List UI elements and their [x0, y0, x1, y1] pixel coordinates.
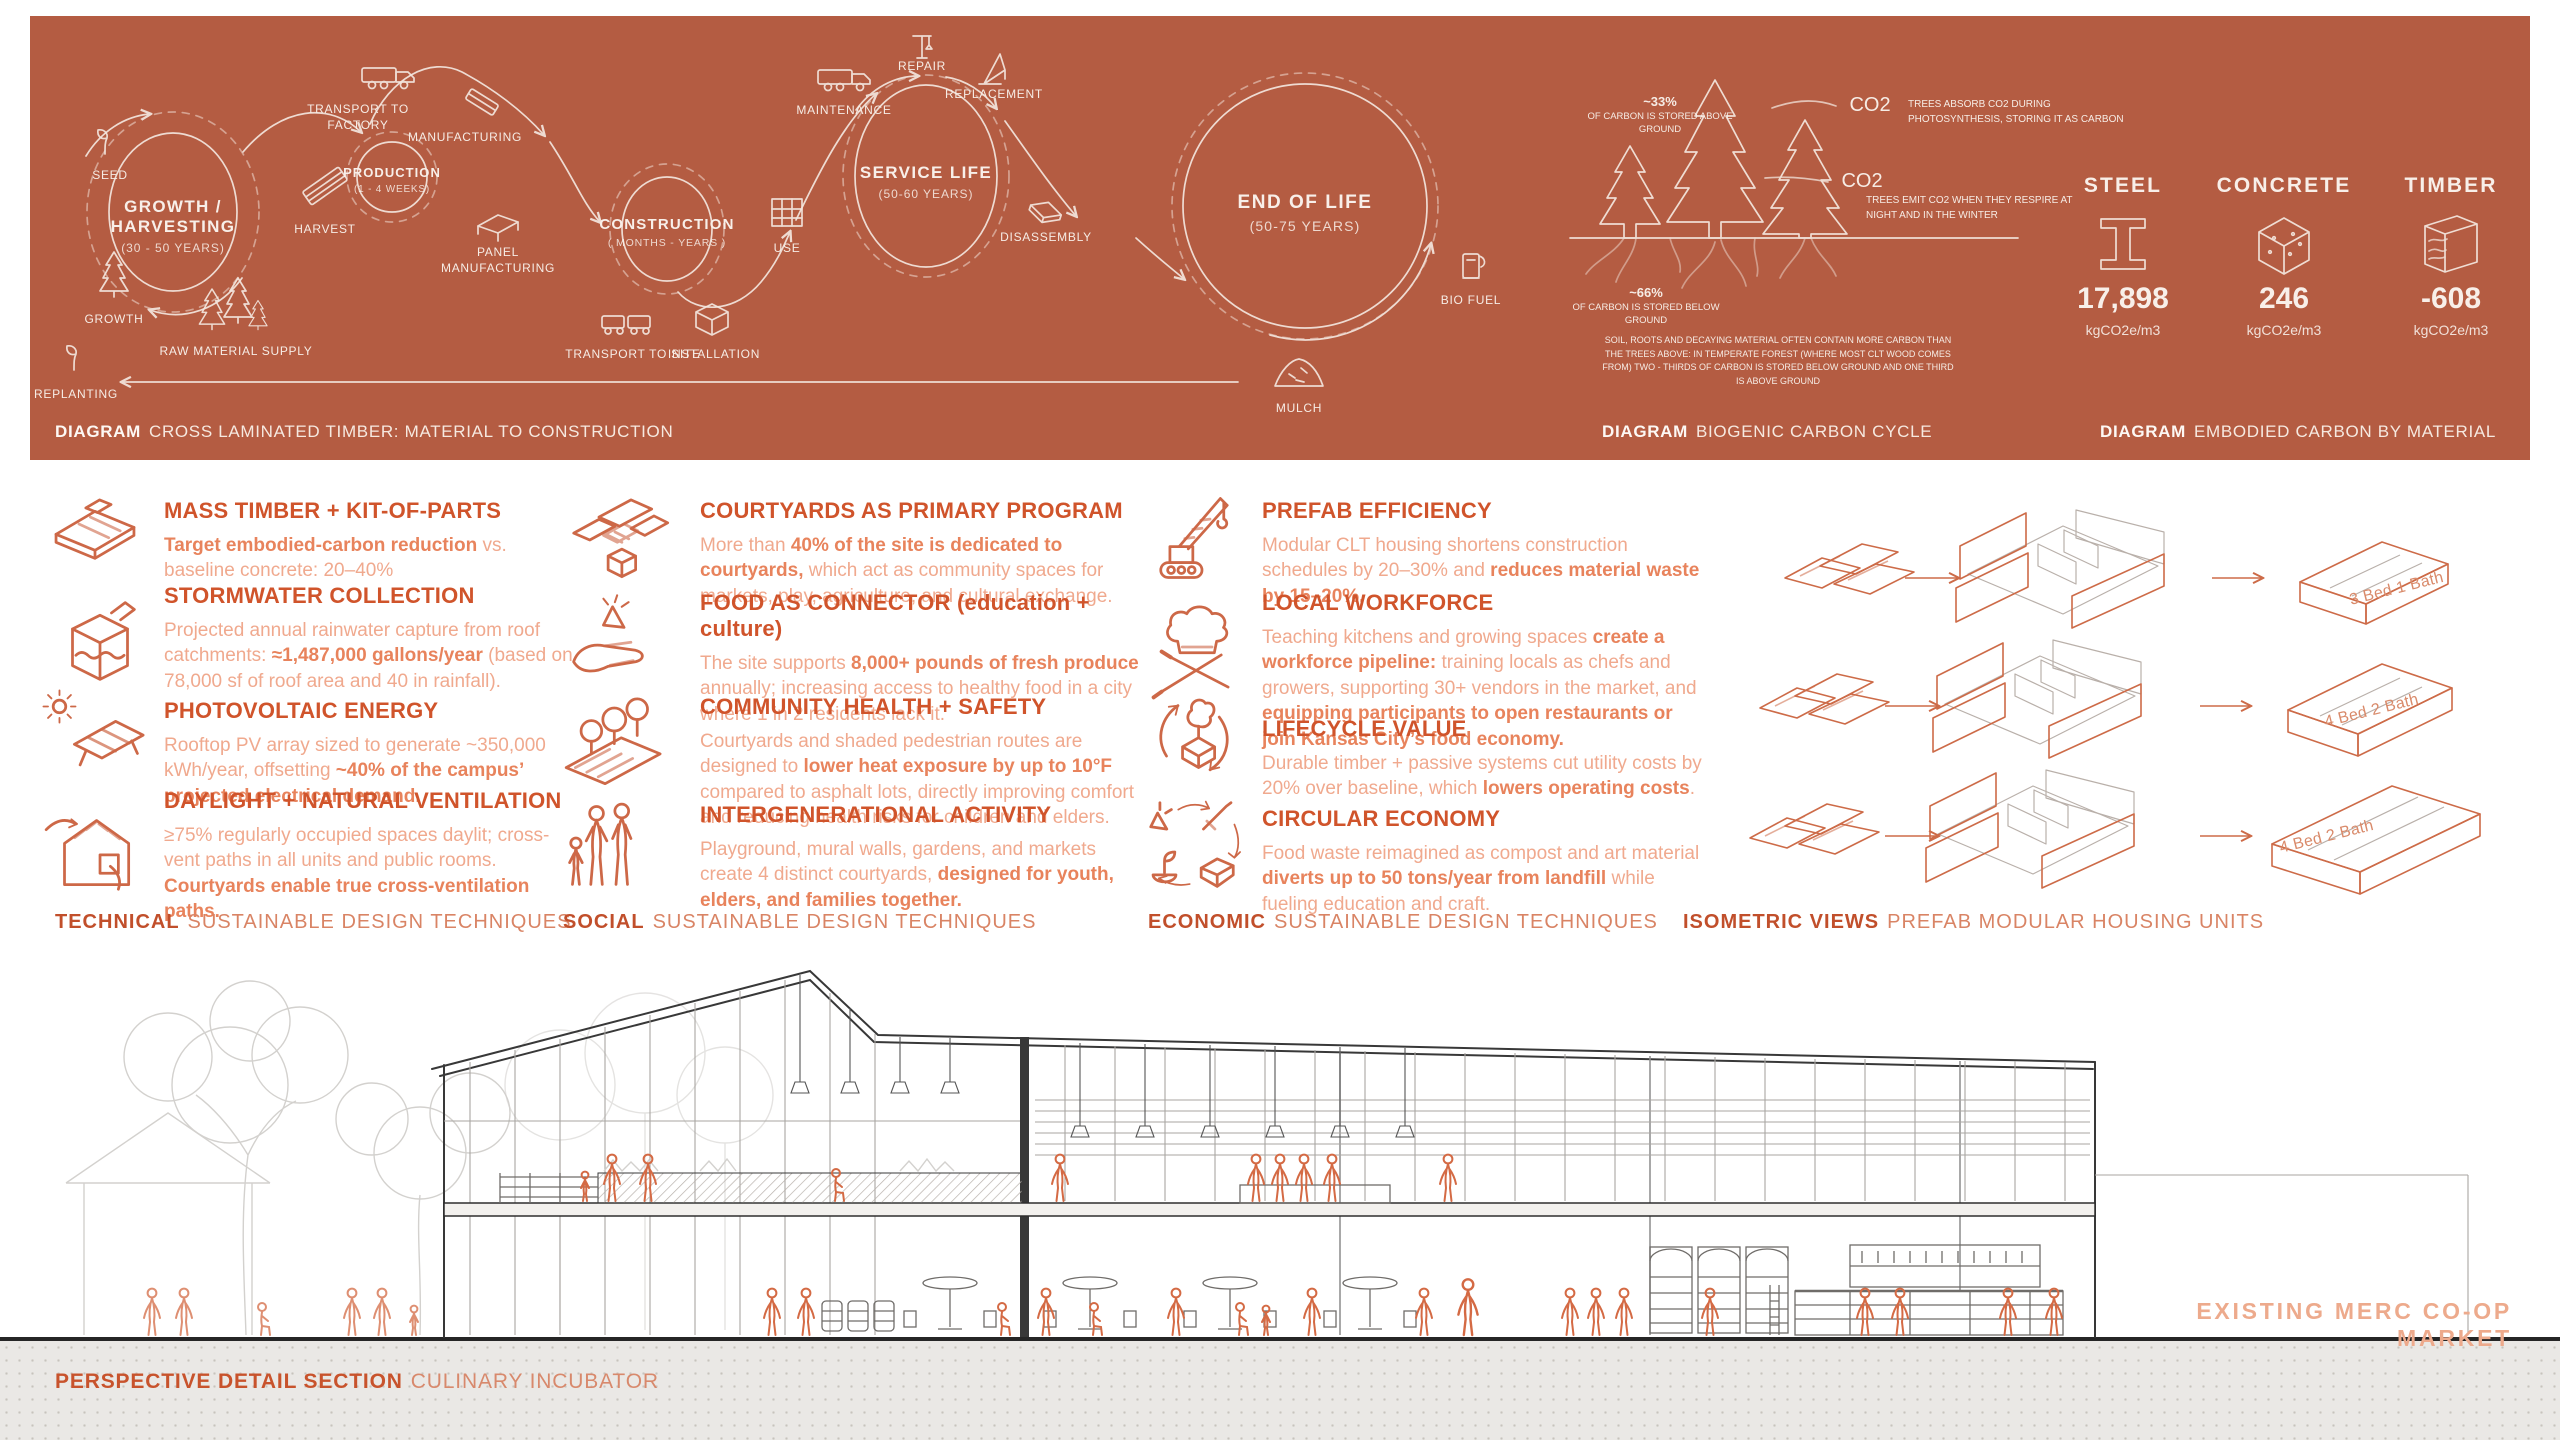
iso-row-2 [1760, 640, 2452, 758]
label-mulch: MULCH [1249, 401, 1349, 417]
replacement-crane-icon [979, 54, 1005, 84]
stormwater-icon [45, 590, 155, 700]
second-floor-slab [444, 1203, 2095, 1216]
feature-circular: CIRCULAR ECONOMYFood waste reimagined as… [1262, 806, 1708, 917]
label-harvest: HARVEST [275, 222, 375, 238]
background-trees [66, 981, 773, 1335]
carbon-above-pct: ~33% [1600, 94, 1720, 109]
feature-intergenerational: INTERGENERATIONAL ACTIVITYPlayground, mu… [700, 802, 1152, 913]
mulch-icon [1275, 359, 1323, 386]
panel-manufacturing-icon [478, 215, 518, 241]
steel-unit: kgCO2e/m3 [2048, 322, 2198, 338]
footer-isometric: ISOMETRIC VIEWSPREFAB MODULAR HOUSING UN… [1683, 911, 2264, 934]
building-section [432, 971, 2095, 1337]
replanting-icon [67, 346, 76, 370]
co2-emit-label: CO2 [1834, 170, 1890, 193]
feature-mass-timber: MASS TIMBER + KIT-OF-PARTSTarget embodie… [164, 498, 576, 584]
use-building-icon [772, 199, 802, 226]
section-caption: PERSPECTIVE DETAIL SECTIONCULINARY INCUB… [55, 1370, 659, 1394]
co2-absorb-note: TREES ABSORB CO2 DURING PHOTOSYNTHESIS, … [1908, 98, 2134, 127]
label-bio-fuel: BIO FUEL [1421, 293, 1521, 309]
mezzanine-planter [598, 1173, 1022, 1203]
raw-material-trees-icon [199, 278, 267, 330]
carbon-below-note: OF CARBON IS STORED BELOW GROUND [1571, 301, 1721, 328]
dining-tables [904, 1277, 1416, 1329]
label-disassembly: DISASSEMBLY [986, 230, 1106, 246]
label-manufacturing: MANUFACTURING [395, 130, 535, 146]
feature-lifecycle-value: LIFECYCLE VALUEDurable timber + passive … [1262, 716, 1708, 802]
caption-biogenic: DIAGRAMBIOGENIC CARBON CYCLE [1602, 422, 1932, 442]
label-replacement: REPLACEMENT [934, 87, 1054, 103]
circle-growth-harvesting: GROWTH / HARVESTING(30 - 50 YEARS) [73, 197, 273, 255]
label-use: USE [757, 241, 817, 257]
disassembly-panel-icon [1027, 197, 1064, 227]
iso-row-1 [1785, 510, 2448, 628]
concrete-cube-icon [2259, 218, 2309, 274]
growth-tree-icon [100, 252, 128, 297]
footer-economic: ECONOMICSUSTAINABLE DESIGN TECHNIQUES [1148, 911, 1658, 934]
steel-ibeam-icon [2101, 219, 2145, 269]
steel-value: 17,898 [2048, 282, 2198, 316]
circle-construction: CONSTRUCTION( MONTHS - YEARS ) [587, 216, 747, 249]
lifecycle-tree-icon [1139, 685, 1249, 795]
label-installation: INSTALLATION [654, 347, 774, 363]
maintenance-truck-icon [818, 70, 870, 91]
caption-clt-lifecycle: DIAGRAMCROSS LAMINATED TIMBER: MATERIAL … [55, 422, 673, 442]
label-panel-mfg: PANEL MANUFACTURING [440, 245, 556, 276]
presentation-board: GROWTH / HARVESTING(30 - 50 YEARS) PRODU… [0, 0, 2560, 1440]
bio-fuel-pump-icon [1463, 254, 1485, 278]
ladder [1770, 1285, 1779, 1335]
crane-icon [1147, 487, 1257, 597]
manufacturing-plank-icon [465, 88, 498, 115]
people-outside [144, 1289, 418, 1335]
roots [1586, 238, 1836, 288]
carbon-below-pct: ~66% [1586, 285, 1706, 300]
co2-absorb-label: CO2 [1842, 94, 1898, 117]
diagram-band: GROWTH / HARVESTING(30 - 50 YEARS) PRODU… [30, 16, 2530, 460]
photovoltaic-icon [40, 687, 150, 797]
concrete-unit: kgCO2e/m3 [2209, 322, 2359, 338]
label-seed: SEED [60, 168, 160, 184]
circle-service-life: SERVICE LIFE(50-60 YEARS) [836, 163, 1016, 201]
carbon-above-note: OF CARBON IS STORED ABOVE GROUND [1585, 110, 1735, 137]
caption-embodied: DIAGRAMEMBODIED CARBON BY MATERIAL [2100, 422, 2496, 442]
planter-plants [604, 1159, 954, 1171]
footer-technical: TECHNICALSUSTAINABLE DESIGN TECHNIQUES [55, 911, 571, 934]
isometric-units-diagram [1700, 486, 2560, 896]
label-to-factory: TRANSPORT TO FACTORY [302, 102, 414, 133]
circle-production: PRODUCTION(1 - 4 WEEKS) [332, 165, 452, 195]
barrels [822, 1301, 894, 1331]
feature-daylight: DAYLIGHT + NATURAL VENTILATION≥75% regul… [164, 788, 576, 925]
concrete-value: 246 [2209, 282, 2359, 316]
band-line-art [30, 16, 2530, 460]
mass-timber-icon [40, 477, 150, 587]
timber-unit: kgCO2e/m3 [2376, 322, 2526, 338]
timber-value: -608 [2376, 282, 2526, 316]
material-icons [2101, 216, 2477, 274]
material-timber: TIMBER [2376, 174, 2526, 198]
material-steel: STEEL [2048, 174, 2198, 198]
pine-tree-small [1600, 146, 1660, 238]
courtyard-icon [560, 485, 670, 595]
material-concrete: CONCRETE [2209, 174, 2359, 198]
timber-block-icon [2425, 216, 2477, 272]
label-maintenance: MAINTENANCE [784, 103, 904, 119]
kitchen-counter [1770, 1245, 2063, 1335]
label-repair: REPAIR [872, 59, 972, 75]
left-hall-mullions [470, 980, 875, 1335]
seed-icon [98, 130, 107, 154]
repair-crane-icon [913, 36, 932, 58]
label-replanting: REPLANTING [30, 387, 122, 403]
label-raw-material: RAW MATERIAL SUPPLY [146, 344, 326, 360]
biogenic-footnote: SOIL, ROOTS AND DECAYING MATERIAL OFTEN … [1598, 334, 1958, 388]
circular-economy-icon [1137, 797, 1247, 907]
louver-band [1035, 1100, 2090, 1155]
installation-icon [696, 304, 728, 335]
pendant-lights [791, 975, 1414, 1137]
right-hall-mullions [1065, 1045, 2065, 1201]
transport-site-trucks-icon [602, 316, 650, 334]
label-growth: GROWTH [64, 312, 164, 328]
kitchen-racks [1650, 1247, 1788, 1333]
daylight-ventilation-icon [37, 793, 147, 903]
feature-stormwater: STORMWATER COLLECTIONProjected annual ra… [164, 583, 576, 694]
footer-social: SOCIALSUSTAINABLE DESIGN TECHNIQUES [563, 911, 1036, 934]
co2-emit-note: TREES EMIT CO2 WHEN THEY RESPIRE AT NIGH… [1866, 194, 2082, 223]
people [144, 1155, 2062, 1335]
existing-market-label: EXISTING MERC CO-OP MARKET [2140, 1298, 2512, 1352]
circle-end-of-life: END OF LIFE(50-75 YEARS) [1195, 192, 1415, 234]
